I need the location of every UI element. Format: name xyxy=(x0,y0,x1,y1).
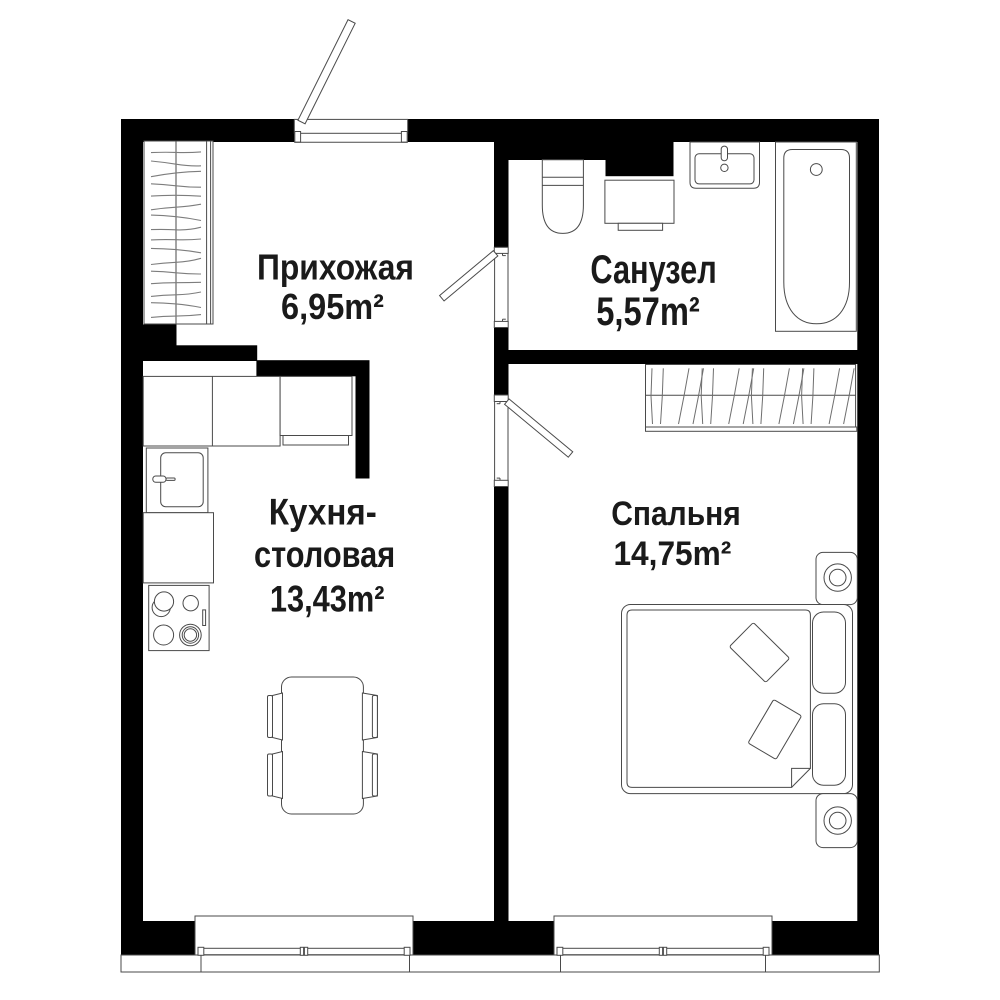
svg-text:Прихожая: Прихожая xyxy=(257,247,414,287)
svg-text:Санузел: Санузел xyxy=(590,247,716,292)
svg-text:6,95m²: 6,95m² xyxy=(281,287,384,327)
svg-text:столовая: столовая xyxy=(254,534,395,575)
svg-text:Кухня-: Кухня- xyxy=(269,491,377,532)
svg-text:5,57m²: 5,57m² xyxy=(596,289,700,334)
svg-text:13,43m²: 13,43m² xyxy=(270,578,385,619)
svg-text:Спальня: Спальня xyxy=(611,495,741,533)
svg-text:14,75m²: 14,75m² xyxy=(613,535,731,573)
